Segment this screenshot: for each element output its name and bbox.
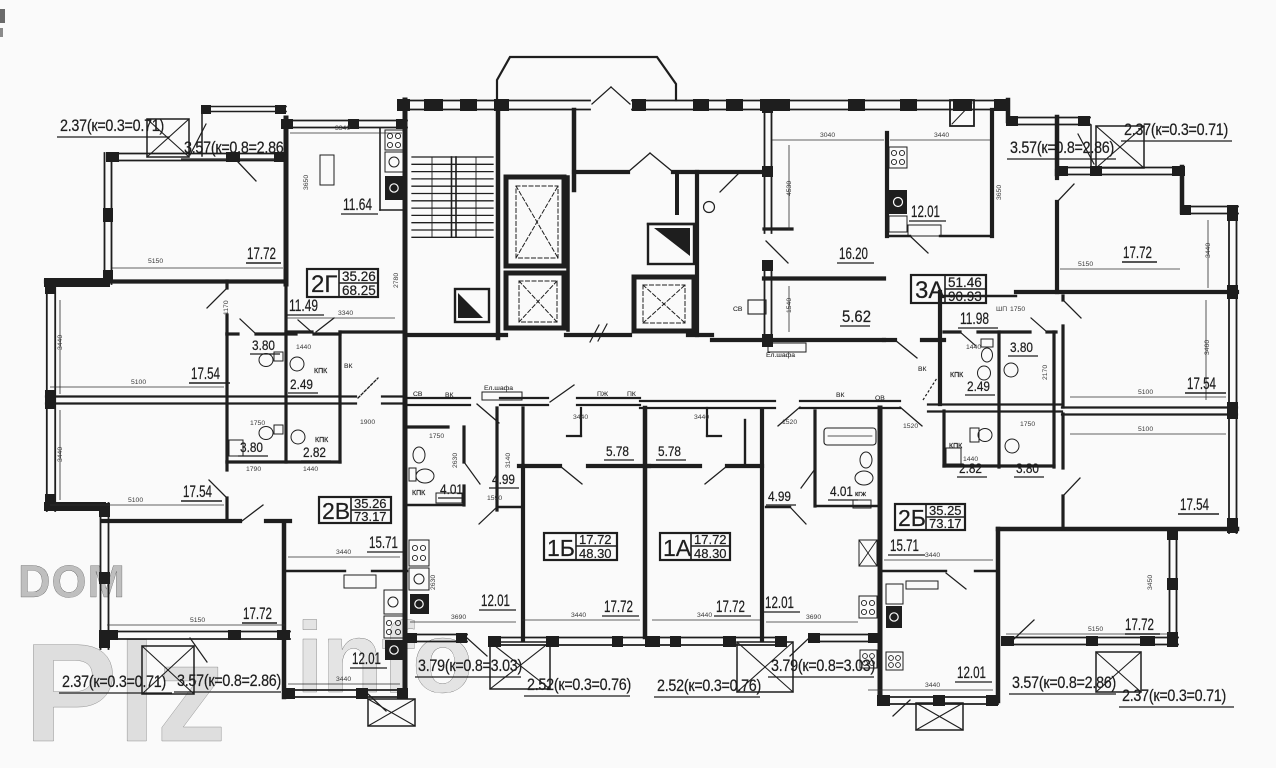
- svg-text:1590: 1590: [487, 495, 502, 502]
- svg-text:3650: 3650: [303, 175, 310, 190]
- svg-text:3440: 3440: [697, 612, 712, 619]
- svg-text:1790: 1790: [246, 466, 261, 473]
- svg-text:1520: 1520: [782, 419, 797, 426]
- svg-text:17.72: 17.72: [1123, 244, 1152, 262]
- svg-text:68.25: 68.25: [342, 283, 376, 298]
- svg-text:35.26: 35.26: [342, 269, 376, 284]
- svg-text:11.49: 11.49: [289, 297, 318, 315]
- svg-text:51.46: 51.46: [948, 275, 982, 290]
- svg-text:90.93: 90.93: [948, 289, 982, 304]
- svg-text:17.54: 17.54: [191, 365, 220, 383]
- svg-text:3440: 3440: [57, 335, 64, 350]
- svg-text:2Б: 2Б: [898, 505, 926, 531]
- svg-text:2.37(к=0.3=0.71): 2.37(к=0.3=0.71): [60, 117, 164, 135]
- svg-text:15.71: 15.71: [369, 534, 398, 552]
- svg-text:СВ: СВ: [733, 306, 743, 313]
- svg-text:3460: 3460: [1204, 340, 1211, 355]
- svg-text:2170: 2170: [1042, 365, 1049, 380]
- svg-text:2630: 2630: [452, 453, 459, 468]
- svg-text:ВК: ВК: [836, 392, 845, 399]
- svg-text:1900: 1900: [360, 419, 375, 426]
- svg-text:1520: 1520: [903, 423, 918, 430]
- svg-text:2.37(к=0.3=0.71): 2.37(к=0.3=0.71): [1124, 121, 1228, 139]
- svg-text:17.72: 17.72: [604, 598, 633, 616]
- svg-text:4.01: 4.01: [440, 481, 463, 497]
- svg-text:3.79(к=0.8=3.03): 3.79(к=0.8=3.03): [418, 657, 522, 675]
- svg-text:3440: 3440: [573, 414, 588, 421]
- svg-text:3.80: 3.80: [240, 439, 263, 455]
- svg-text:3690: 3690: [451, 614, 466, 621]
- svg-text:17.54: 17.54: [183, 483, 212, 501]
- svg-text:3.57(к=0.8=2.86): 3.57(к=0.8=2.86): [1010, 139, 1114, 157]
- svg-text:4530: 4530: [786, 181, 793, 196]
- svg-text:2630: 2630: [430, 575, 437, 590]
- svg-text:3040: 3040: [820, 132, 835, 139]
- svg-text:СВ: СВ: [413, 391, 423, 398]
- svg-text:5100: 5100: [1138, 389, 1153, 396]
- svg-text:КПК: КПК: [950, 372, 964, 379]
- svg-text:1750: 1750: [1010, 306, 1025, 313]
- svg-text:5100: 5100: [131, 379, 146, 386]
- svg-text:16.20: 16.20: [839, 245, 868, 263]
- svg-text:ВК: ВК: [344, 363, 353, 370]
- svg-text:1440: 1440: [303, 466, 318, 473]
- svg-text:11.64: 11.64: [343, 196, 372, 214]
- svg-text:1А: 1А: [663, 535, 692, 561]
- svg-text:КПК: КПК: [412, 490, 426, 497]
- svg-text:3.57(к=0.8=2.86): 3.57(к=0.8=2.86): [177, 672, 281, 690]
- svg-text:5100: 5100: [128, 497, 143, 504]
- svg-text:11.98: 11.98: [960, 310, 989, 328]
- svg-text:3450: 3450: [1147, 575, 1154, 590]
- svg-text:5.78: 5.78: [658, 443, 681, 459]
- svg-text:2.82: 2.82: [303, 444, 326, 460]
- svg-text:5.78: 5.78: [606, 443, 629, 459]
- svg-text:2.52(к=0.3=0.76): 2.52(к=0.3=0.76): [657, 677, 761, 695]
- svg-text:3140: 3140: [505, 453, 512, 468]
- svg-text:3.57(к=0.8=2.86): 3.57(к=0.8=2.86): [1012, 674, 1116, 692]
- svg-text:3440: 3440: [336, 676, 351, 683]
- svg-text:КПК: КПК: [949, 443, 963, 450]
- svg-text:17.72: 17.72: [247, 245, 276, 263]
- svg-text:1170: 1170: [223, 300, 230, 315]
- svg-text:73.17: 73.17: [929, 516, 962, 531]
- svg-text:Ел.шафа: Ел.шафа: [484, 385, 513, 392]
- svg-text:ОВ: ОВ: [875, 395, 885, 402]
- svg-text:73.17: 73.17: [354, 509, 387, 524]
- svg-text:2.37(к=0.3=0.71): 2.37(к=0.3=0.71): [1122, 687, 1226, 705]
- svg-text:4.99: 4.99: [768, 488, 791, 504]
- svg-text:ВК: ВК: [918, 366, 927, 373]
- svg-text:2.49: 2.49: [967, 378, 990, 394]
- svg-text:5150: 5150: [190, 617, 205, 624]
- svg-text:17.72: 17.72: [1125, 616, 1154, 634]
- svg-text:2.52(к=0.3=0.76): 2.52(к=0.3=0.76): [527, 676, 631, 694]
- svg-text:1750: 1750: [250, 420, 265, 427]
- svg-text:3440: 3440: [571, 612, 586, 619]
- svg-text:3.57(к=0.8=2.86): 3.57(к=0.8=2.86): [184, 139, 288, 157]
- svg-text:1440: 1440: [963, 456, 978, 463]
- svg-text:5.62: 5.62: [842, 308, 871, 326]
- svg-text:1Б: 1Б: [547, 535, 575, 561]
- svg-text:5100: 5100: [1138, 426, 1153, 433]
- svg-text:3650: 3650: [996, 185, 1003, 200]
- svg-text:12.01: 12.01: [765, 594, 794, 612]
- svg-text:2.49: 2.49: [290, 376, 313, 392]
- svg-text:1440: 1440: [296, 344, 311, 351]
- svg-text:3690: 3690: [806, 614, 821, 621]
- svg-text:3440: 3440: [925, 552, 940, 559]
- svg-text:3340: 3340: [335, 125, 350, 132]
- svg-text:17.54: 17.54: [1187, 375, 1216, 393]
- svg-text:5150: 5150: [148, 258, 163, 265]
- svg-text:2.37(к=0.3=0.71): 2.37(к=0.3=0.71): [62, 673, 166, 691]
- svg-text:12.01: 12.01: [481, 592, 510, 610]
- svg-text:3440: 3440: [336, 549, 351, 556]
- svg-text:3440: 3440: [925, 682, 940, 689]
- svg-text:ПЖ: ПЖ: [597, 391, 609, 398]
- svg-text:17.72: 17.72: [694, 532, 727, 547]
- svg-text:3.80: 3.80: [252, 337, 275, 353]
- svg-text:ШП: ШП: [996, 306, 1007, 313]
- svg-text:КПК: КПК: [315, 437, 329, 444]
- svg-text:3.80: 3.80: [1016, 460, 1039, 476]
- svg-text:1750: 1750: [1020, 421, 1035, 428]
- svg-text:ПК: ПК: [627, 391, 636, 398]
- svg-text:15.71: 15.71: [890, 537, 919, 555]
- svg-text:5150: 5150: [1078, 261, 1093, 268]
- svg-text:12.01: 12.01: [957, 664, 986, 682]
- svg-text:1750: 1750: [429, 433, 444, 440]
- svg-text:48.30: 48.30: [694, 546, 727, 561]
- svg-text:2780: 2780: [393, 273, 400, 288]
- svg-text:3440: 3440: [934, 132, 949, 139]
- svg-text:3440: 3440: [694, 414, 709, 421]
- svg-text:2В: 2В: [322, 498, 350, 524]
- svg-text:4.01: 4.01: [830, 483, 853, 499]
- svg-text:17.72: 17.72: [716, 598, 745, 616]
- svg-text:3А: 3А: [915, 277, 944, 304]
- svg-text:Plz: Plz: [24, 614, 226, 768]
- svg-text:48.30: 48.30: [579, 546, 612, 561]
- svg-text:17.54: 17.54: [1180, 496, 1209, 514]
- svg-text:ВК: ВК: [445, 392, 454, 399]
- svg-text:кгж: кгж: [855, 489, 866, 498]
- svg-text:5150: 5150: [1088, 626, 1103, 633]
- svg-text:1440: 1440: [966, 344, 981, 351]
- svg-text:Ел.шафа: Ел.шафа: [766, 352, 795, 359]
- svg-text:КПК: КПК: [314, 368, 328, 375]
- svg-text:3.80: 3.80: [1010, 339, 1033, 355]
- svg-text:12.01: 12.01: [911, 203, 940, 221]
- svg-text:17.72: 17.72: [579, 532, 612, 547]
- svg-text:2Г: 2Г: [311, 271, 337, 298]
- svg-text:3340: 3340: [338, 310, 353, 317]
- svg-text:12.01: 12.01: [352, 650, 381, 668]
- svg-text:17.72: 17.72: [243, 605, 272, 623]
- svg-text:1540: 1540: [786, 298, 793, 313]
- svg-text:3440: 3440: [57, 447, 64, 462]
- svg-text:3.79(к=0.8=3.03): 3.79(к=0.8=3.03): [771, 657, 875, 675]
- svg-text:3440: 3440: [1205, 243, 1212, 258]
- svg-text:4.99: 4.99: [492, 471, 515, 487]
